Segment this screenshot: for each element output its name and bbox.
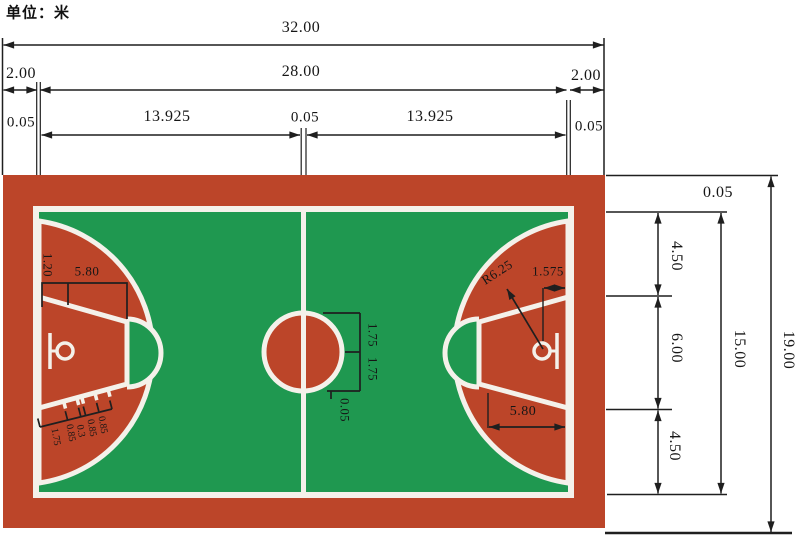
label-hash-5: 0.85 — [96, 416, 109, 435]
label-free-throw-distance-right: 5.80 — [510, 405, 537, 419]
label-circle-radius-lower: 1.75 — [366, 357, 379, 381]
dim-zone-top-label: 4.50 — [668, 241, 684, 271]
dim-center-line-width-top-label: 0.05 — [291, 111, 319, 126]
top-dimensions — [3, 38, 605, 175]
court-dimension-diagram: 单位：米 32.00 2.00 28.00 2.00 0.05 13.925 0… — [0, 0, 800, 536]
label-basket-to-endline: 1.575 — [532, 265, 564, 278]
dim-half-court-right-label: 13.925 — [407, 109, 454, 125]
label-hash-3: 0.3 — [74, 424, 86, 438]
dim-sideline-width-left-label: 0.05 — [7, 116, 35, 131]
dim-lane-width-label: 6.00 — [668, 333, 684, 363]
dim-sideline-width-right-label: 0.05 — [575, 120, 603, 135]
dim-margin-right-label: 2.00 — [571, 68, 601, 84]
dim-half-court-left-label: 13.925 — [144, 109, 191, 125]
label-hash-1: 1.75 — [49, 428, 62, 447]
dim-zone-bottom-label: 4.50 — [666, 431, 682, 461]
dim-total-width-label: 19.00 — [780, 331, 796, 370]
dim-court-length-label: 28.00 — [282, 64, 321, 80]
dim-endline-width-label: 0.05 — [703, 185, 733, 201]
dim-margin-left-label: 2.00 — [6, 66, 36, 82]
label-circle-radius-upper: 1.75 — [366, 323, 379, 347]
label-center-line-width: 0.05 — [338, 398, 351, 422]
dim-court-width-label: 15.00 — [731, 330, 747, 369]
label-free-throw-distance-left: 5.80 — [75, 265, 100, 278]
dim-total-length-label: 32.00 — [282, 20, 321, 36]
label-backboard-offset: 1.20 — [41, 253, 54, 277]
right-dimensions — [605, 176, 792, 534]
court — [3, 175, 605, 528]
ext-double-lines — [37, 82, 571, 175]
unit-label: 单位：米 — [6, 6, 70, 21]
